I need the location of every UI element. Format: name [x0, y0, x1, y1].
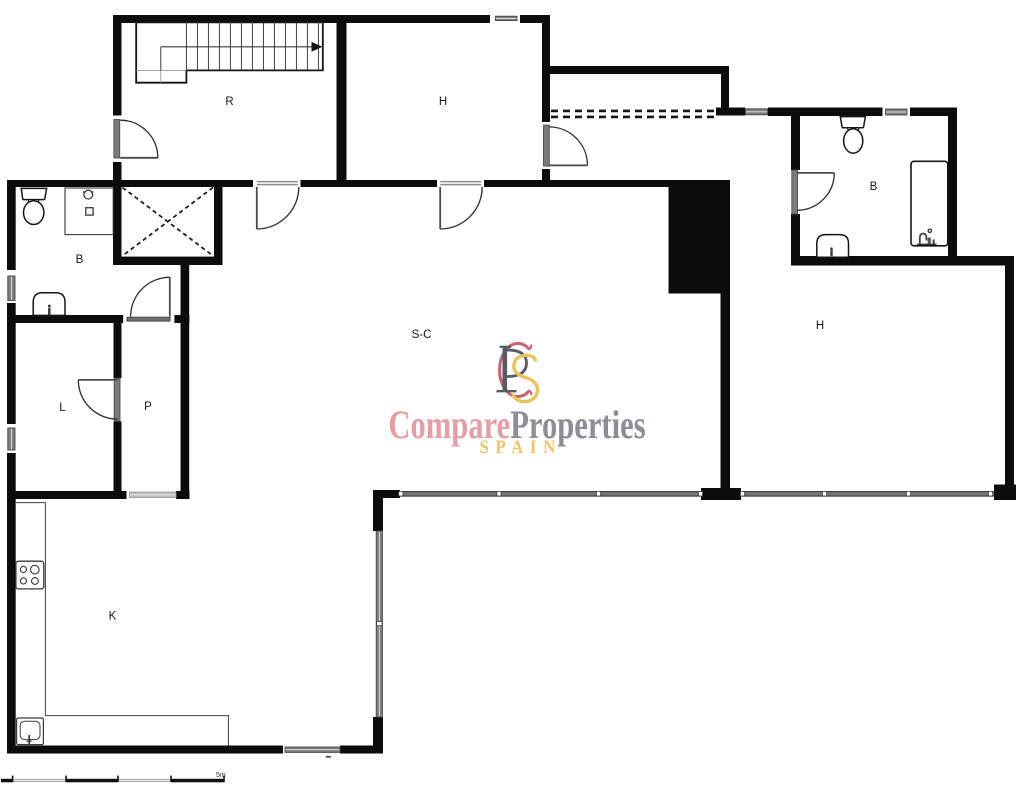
svg-text:B: B: [76, 254, 84, 266]
svg-text:S-C: S-C: [412, 329, 432, 341]
svg-text:H: H: [439, 96, 447, 108]
svg-text:P: P: [144, 401, 152, 413]
svg-text:B: B: [870, 181, 878, 193]
svg-text:L: L: [59, 402, 66, 414]
svg-text:SPAIN: SPAIN: [480, 436, 562, 457]
svg-text:H: H: [816, 320, 824, 332]
svg-text:5m: 5m: [216, 772, 226, 779]
svg-text:K: K: [109, 611, 117, 623]
svg-text:R: R: [225, 96, 233, 108]
